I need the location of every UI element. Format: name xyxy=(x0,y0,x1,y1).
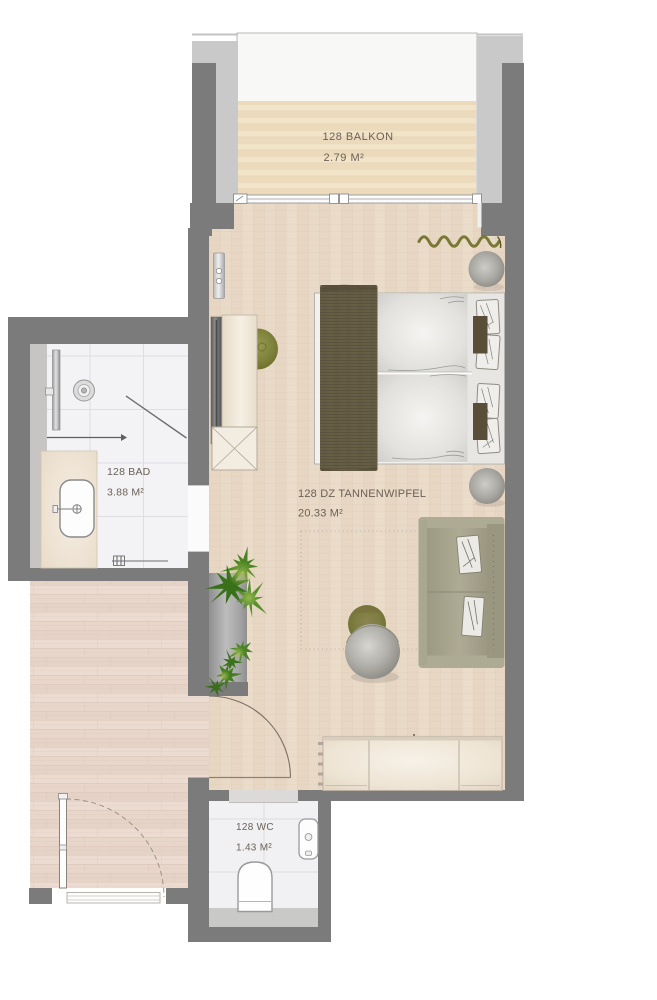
svg-text:3.88 M²: 3.88 M² xyxy=(107,487,144,499)
svg-text:20.33 M²: 20.33 M² xyxy=(298,508,343,520)
svg-text:128 BALKON: 128 BALKON xyxy=(323,131,394,143)
svg-text:128 WC: 128 WC xyxy=(236,822,274,833)
svg-text:1.43 M²: 1.43 M² xyxy=(236,843,272,854)
svg-text:2.79 M²: 2.79 M² xyxy=(324,152,365,164)
svg-text:128 DZ TANNENWIPFEL: 128 DZ TANNENWIPFEL xyxy=(298,488,426,500)
svg-text:128 BAD: 128 BAD xyxy=(107,466,151,478)
